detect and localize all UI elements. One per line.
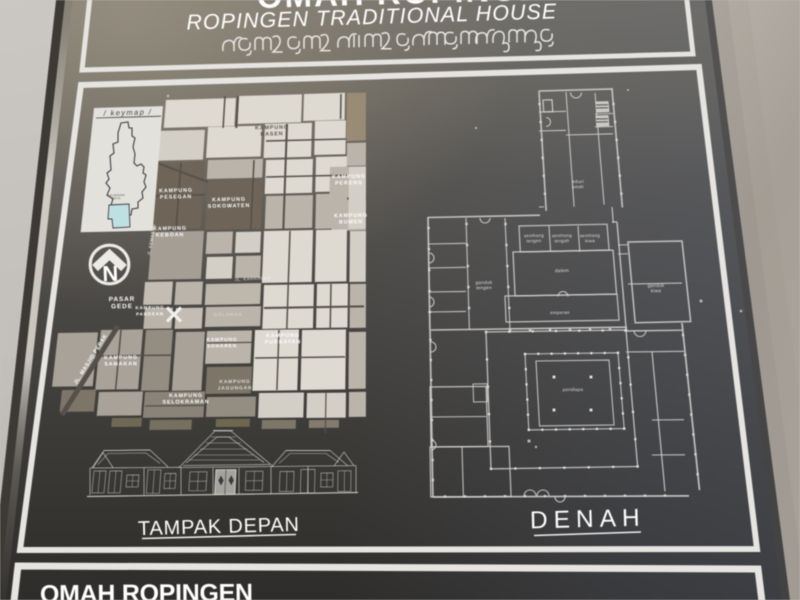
svg-text:SOKOWATEN: SOKOWATEN bbox=[208, 203, 251, 210]
svg-text:DENAH: DENAH bbox=[530, 505, 646, 535]
svg-text:N: N bbox=[102, 261, 119, 287]
svg-text:DOLAHAN: DOLAHAN bbox=[214, 312, 243, 317]
svg-text:KAMPUNG: KAMPUNG bbox=[169, 393, 203, 399]
svg-text:PANDEAN: PANDEAN bbox=[136, 311, 164, 316]
svg-text:OMAH ROPINGEN: OMAH ROPINGEN bbox=[40, 579, 253, 600]
svg-text:tengah: tengah bbox=[554, 238, 569, 243]
svg-text:KAMPUNG: KAMPUNG bbox=[104, 355, 138, 361]
svg-text:GEDE: GEDE bbox=[111, 303, 133, 310]
svg-text:dalem: dalem bbox=[555, 268, 569, 273]
svg-text:pendlapa: pendlapa bbox=[563, 387, 584, 392]
svg-text:PERENG: PERENG bbox=[335, 180, 363, 187]
svg-text:SAMAKAN: SAMAKAN bbox=[104, 361, 137, 367]
svg-text:tengen: tengen bbox=[526, 238, 541, 243]
svg-text:KAMPUNG: KAMPUNG bbox=[206, 337, 237, 343]
svg-text:KAMPUNG: KAMPUNG bbox=[135, 305, 164, 310]
svg-text:omah: omah bbox=[572, 184, 584, 189]
svg-text:JOGJA: JOGJA bbox=[111, 196, 121, 200]
svg-text:emperan: emperan bbox=[550, 310, 570, 315]
svg-text:KAMPUNG: KAMPUNG bbox=[255, 125, 289, 132]
svg-text:tengen: tengen bbox=[476, 285, 492, 290]
svg-text:PESEGAN: PESEGAN bbox=[160, 194, 192, 201]
svg-text:/ keymap /: / keymap / bbox=[103, 107, 153, 117]
svg-text:kiwa: kiwa bbox=[585, 238, 595, 243]
svg-text:KEBOAN: KEBOAN bbox=[156, 232, 184, 239]
svg-text:SELOKRAMAN: SELOKRAMAN bbox=[162, 399, 209, 405]
svg-text:BUMEN: BUMEN bbox=[339, 219, 363, 225]
svg-text:JAGUNGAN: JAGUNGAN bbox=[218, 385, 253, 391]
svg-text:kiwa: kiwa bbox=[651, 288, 662, 293]
svg-text:PURBAYAN: PURBAYAN bbox=[265, 339, 301, 345]
svg-text:BASEN: BASEN bbox=[260, 131, 283, 138]
svg-text:SOHAREN: SOHAREN bbox=[207, 343, 237, 349]
svg-text:KAMPUNG: KAMPUNG bbox=[219, 379, 250, 385]
